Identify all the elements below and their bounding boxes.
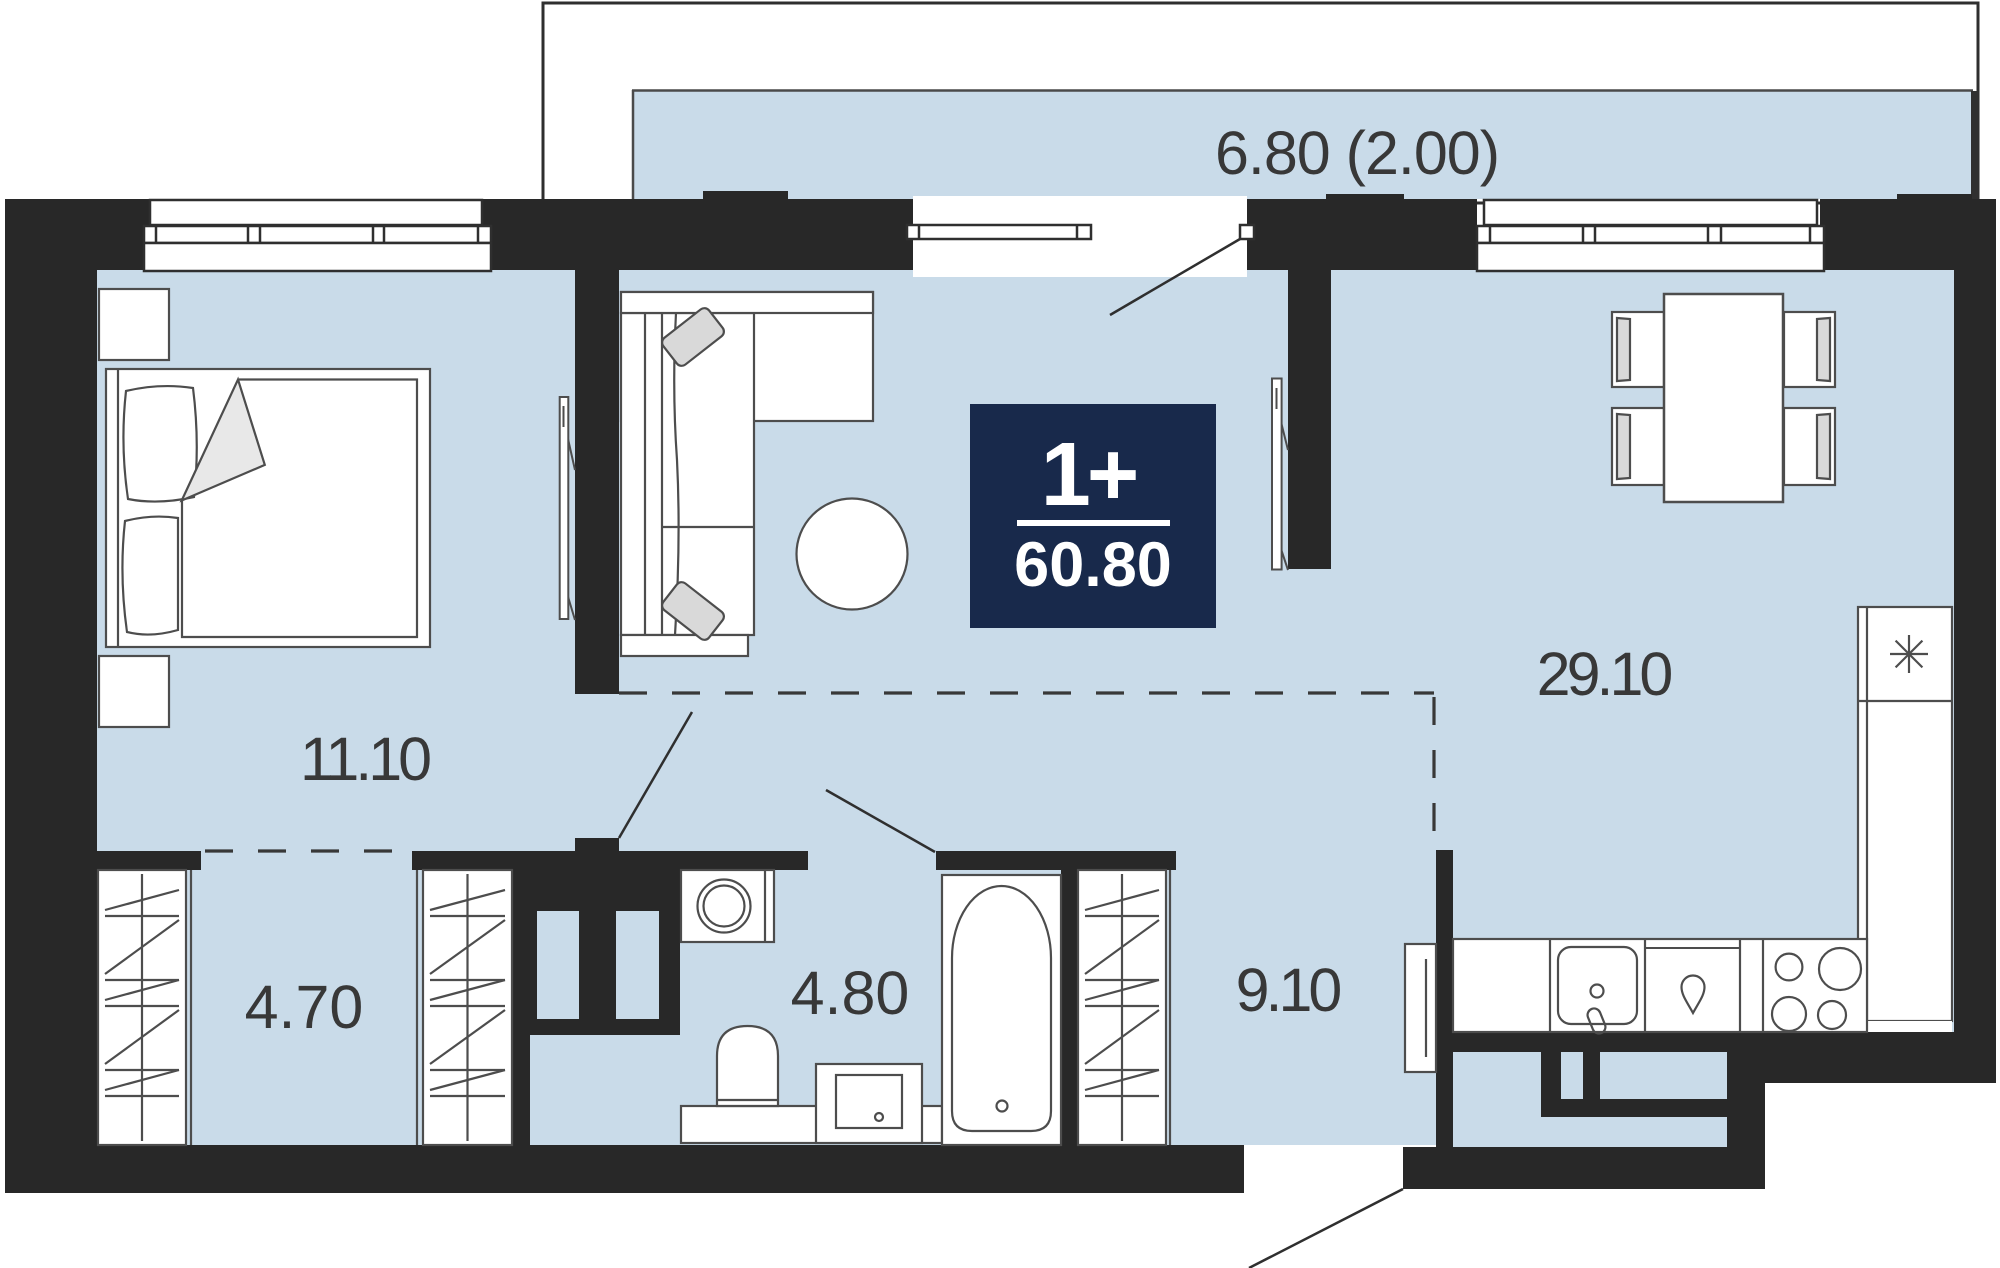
svg-text:11.10: 11.10	[300, 725, 430, 793]
svg-text:4.70: 4.70	[245, 973, 364, 1041]
svg-text:1+: 1+	[1041, 425, 1136, 525]
svg-text:9.10: 9.10	[1236, 956, 1341, 1024]
svg-text:29.10: 29.10	[1537, 640, 1672, 708]
svg-text:60.80: 60.80	[1014, 530, 1172, 600]
svg-text:6.80 (2.00): 6.80 (2.00)	[1215, 119, 1499, 187]
svg-text:4.80: 4.80	[791, 959, 910, 1027]
